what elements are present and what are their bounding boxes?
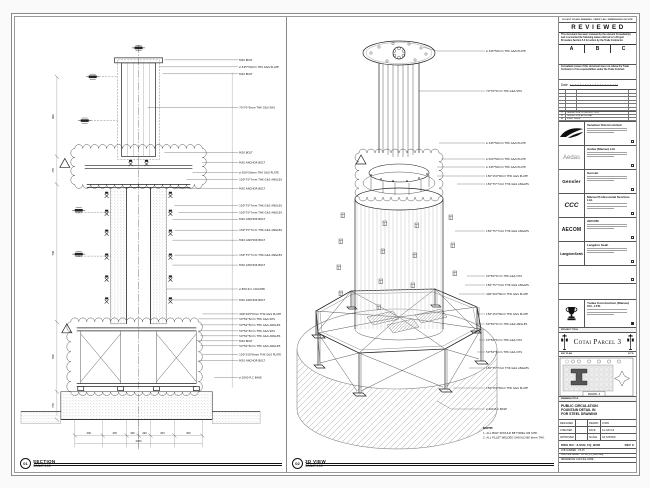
contractor-trophy-icon — [565, 306, 578, 322]
project-name: Cotai Parcel 3 — [574, 338, 622, 346]
callout-label: 70*70*5mm THK G&S SHS — [239, 106, 275, 110]
callout-label: M20 ANCHOR BOLT — [239, 263, 265, 267]
callout-label: 150*75*7mm THK G&S ANGLES — [239, 177, 282, 181]
revision-table-entries: CISSUED FOR CONSTRUCTION BISSUED FOR APP… — [559, 112, 636, 122]
callout-label: M20 ANCHOR BOLT — [239, 160, 265, 164]
status-c[interactable]: C — [611, 45, 636, 53]
section-callouts: M20 BOLT ø 345*50mm THK G&S PLATE M20 BO… — [148, 58, 283, 380]
callout-label: 50*50*5mm THK G&S ANGLES — [239, 323, 280, 327]
callout-label: 150*75*7mm THK G&S ANGLES — [239, 228, 282, 232]
drawing-sheet: 600 750 500 500 750 400 400 400 400 400 … — [11, 13, 640, 476]
callout-label: 50*50*5mm THK G&S ANGLES — [239, 334, 280, 338]
callout-label: M20 BOLT — [239, 339, 253, 343]
rev-value: C — [632, 443, 634, 447]
callout-label: ø 500*50mm THK G&S PLATE — [486, 157, 526, 161]
drawing-title-line: FOR STEEL DRAWING — [561, 412, 634, 416]
callout-label: 150*150*8mm THK G&S PLATE — [239, 353, 281, 357]
svg-text:2400: 2400 — [136, 440, 143, 443]
dwg-no-label: DWG NO : — [561, 443, 576, 447]
callout-label: 400*200*8mm THK G&S PLATE — [239, 312, 281, 316]
title-block-panel: DO NOT SCALE DRAWING. VERIFY ALL DIMENSI… — [559, 17, 636, 472]
svg-text:400: 400 — [186, 432, 191, 435]
consultant-block-venetian: Venetian Orient Limited — [559, 122, 636, 146]
section-dimensions: 600 750 500 500 750 400 400 400 400 400 … — [52, 73, 232, 448]
approval-checkbox[interactable] — [631, 140, 635, 144]
scale-field-value: AS SHOWN — [601, 434, 636, 440]
callout-label: 150*75*7mm THK G&S ANGLES — [486, 182, 529, 186]
callout-label: ø 850 R.C COLUMN — [239, 287, 265, 291]
contractor-block: Yudea Construction (Macau) CO., LTD. — [559, 300, 636, 328]
callout-label: 150*75*7mm THK G&S ANGLES — [239, 253, 282, 257]
iso-notes: NOTE: 1. ALL BOLT SHOULD BE FIXING ON SI… — [483, 426, 545, 440]
status-b[interactable]: B — [585, 45, 611, 53]
rev-label: REV — [625, 443, 631, 447]
key-plan-caption: PARCEL 3 — [588, 392, 601, 396]
aedas-logo: Aedas — [563, 155, 580, 161]
callout-label: M20 BOLT — [239, 150, 253, 154]
callout-label: ø 345*50mm THK G&S PLATE — [239, 65, 279, 69]
date-field-value: 14-JUN-16 — [601, 427, 636, 433]
detail-bubble: 01 — [20, 458, 31, 469]
section-view-drawing: 600 750 500 500 750 400 400 400 400 400 … — [15, 17, 286, 472]
note-line: 2. ALL FILLET WELDED SHOULD BE 6mm THK. — [483, 436, 545, 440]
key-plan-scale: N.T.S. — [628, 353, 634, 355]
callout-label: 50*50*5mm THK G&S CHS — [486, 350, 522, 354]
revision-row: AFIRST ISSUE — [559, 118, 636, 121]
callout-label: 50*50*5mm THK G&S ANGLES — [239, 344, 280, 348]
approval-checkbox[interactable] — [631, 260, 635, 264]
checked-label: CHECKED — [559, 427, 576, 433]
view-title-rule-thin — [306, 465, 554, 466]
callout-label: ø 345*50mm THK G&S PLATE — [486, 49, 526, 53]
svg-text:400: 400 — [130, 432, 135, 435]
callout-label: 150*75*7mm THK G&S ANGLES — [239, 203, 282, 207]
date-label: Date : — [561, 83, 570, 87]
checked-value: - — [576, 427, 588, 433]
revision-table-empty — [559, 90, 636, 112]
consultant-block-aedas: Aedas Aedas (Macau) Ltd. — [559, 146, 636, 170]
reviewed-paragraph: This document has been reviewed by the r… — [559, 33, 636, 44]
approval-checkbox[interactable] — [631, 322, 635, 326]
spare-consultant-box — [559, 284, 636, 300]
callout-label: ø 345*50mm THK G&S PLATE — [486, 141, 526, 145]
callout-label: 150*75*7mm THK G&S ANGLES — [486, 283, 529, 287]
ref-cad-file-row: REFERENCE CAD FILE NAME : — [559, 458, 636, 463]
consultant-block-aecom: AECOM AECOM — [559, 218, 636, 242]
callout-label: ø 500*50mm THK G&S PLATE — [239, 170, 279, 174]
key-plan-map: PARCEL 3 — [559, 357, 636, 397]
note-title: NOTE: — [483, 426, 493, 430]
scale-field-label: SCALE — [588, 434, 601, 440]
callout-label: ø 200 R.C BASE — [486, 407, 507, 411]
callout-label: 150*75*7mm THK G&S ANGLES — [486, 229, 529, 233]
langdonseah-logo: LangdonSeah — [560, 252, 582, 256]
reviewed-disclaimer: Consultant review of this document does … — [559, 65, 636, 80]
callout-label: M20 BOLT — [239, 72, 253, 76]
dwg-no-value: 3-SUB_FQ_B000 — [577, 443, 601, 447]
sheet-frame: 600 750 500 500 750 400 400 400 400 400 … — [14, 16, 637, 473]
drawn-value: CHAN — [601, 420, 636, 426]
svg-text:400: 400 — [86, 432, 91, 435]
iso-view-title: 02 3D VIEW SCALE 1:10 — [292, 458, 326, 469]
view-title-rule — [306, 463, 554, 464]
view-scale-text: SCALE 1:10 — [305, 464, 326, 468]
callout-label: 70*70*5mm THK G&S SHS — [486, 89, 522, 93]
designed-label: DESIGNED — [559, 420, 576, 426]
svg-text:750: 750 — [52, 168, 55, 173]
callout-label: M20 ANCHOR BOLT — [239, 238, 265, 242]
status-row: A B C — [559, 44, 636, 53]
svg-text:400: 400 — [142, 432, 147, 435]
iso-geometry — [297, 41, 497, 449]
callout-label: ø 345*50mm THK G&S PLATE — [486, 165, 526, 169]
approved-label: APPROVED — [559, 434, 576, 440]
approval-checkbox[interactable] — [631, 236, 635, 240]
dwg-no-row: DWG NO : 3-SUB_FQ_B000 REV C — [559, 441, 636, 449]
gensler-logo: Gensler — [562, 179, 581, 184]
lamp-icon — [561, 334, 568, 350]
callout-label: 50*50*5mm THK G&S ANGLES — [486, 322, 527, 326]
reviewed-title: R E V I E W E D — [559, 23, 636, 33]
status-a[interactable]: A — [559, 45, 585, 53]
callout-label: 150*150*8mm THK G&S PLATE — [486, 312, 528, 316]
approval-checkbox[interactable] — [631, 278, 635, 282]
svg-text:400: 400 — [160, 432, 165, 435]
aecom-logo: AECOM — [562, 227, 582, 233]
approval-checkbox[interactable] — [631, 164, 635, 168]
drawing-sheet-page: { "sheet": { "views": { "section": {"bub… — [0, 0, 650, 488]
svg-text:750: 750 — [52, 403, 55, 408]
drawing-fields: DESIGNED - DRAWN CHAN CHECKED - DATE 14-… — [559, 420, 636, 441]
iso-view-drawing: ø 345*50mm THK G&S PLATE 70*70*5mm THK G… — [287, 17, 558, 472]
callout-label: 150*150*8mm THK G&S PLATE — [486, 174, 528, 178]
date-entry-line[interactable] — [570, 82, 618, 86]
callout-label: M20 BOLT — [239, 58, 253, 62]
consultant-block-gensler: Gensler Gensler — [559, 170, 636, 194]
svg-text:400: 400 — [112, 432, 117, 435]
svg-text:600: 600 — [52, 114, 55, 119]
svg-text:500: 500 — [52, 354, 55, 359]
drawn-label: DRAWN — [588, 420, 601, 426]
callout-label: M20 ANCHOR BOLT — [239, 186, 265, 190]
note-line: 1. ALL BOLT SHOULD BE FIXING ON SITE. — [483, 431, 538, 435]
mps-logo: CCC — [564, 202, 578, 209]
date-field-label: DATE — [588, 427, 601, 433]
callout-label: M20 ANCHOR BOLT — [239, 359, 265, 363]
svg-text:500: 500 — [52, 250, 55, 255]
callout-label: 50*50*5mm THK G&S SHS — [239, 329, 275, 333]
callout-label: 150*75*7mm THK G&S ANGLES — [239, 210, 282, 214]
callout-label: M20 ANCHOR BOLT — [239, 298, 265, 302]
section-view-title: 01 SECTION SCALE 1:10 — [20, 458, 56, 469]
section-view-panel: 600 750 500 500 750 400 400 400 400 400 … — [15, 17, 287, 472]
approved-value: - — [576, 434, 588, 440]
consultant-block-mps: CCC Macau Professional Services Ltd. — [559, 194, 636, 218]
lamp-icon — [627, 334, 634, 350]
callout-label: M20 ANCHOR BOLT — [239, 217, 265, 221]
designed-value: - — [576, 420, 588, 426]
project-name-row: Cotai Parcel 3 — [559, 333, 636, 352]
callout-label: 400*200*8mm THK G&S PLATE — [486, 292, 528, 296]
iso-view-panel: ø 345*50mm THK G&S PLATE 70*70*5mm THK G… — [287, 17, 559, 472]
approval-checkbox[interactable] — [631, 212, 635, 216]
key-plan-drawing: PARCEL 3 — [559, 357, 634, 397]
callout-label: 50*50*5mm THK G&S CHS — [486, 274, 522, 278]
callout-label: 50*50*5mm THK G&S SHS — [239, 317, 275, 321]
callout-label: 150*150*8mm THK G&S PLATE — [486, 386, 528, 390]
view-scale-text: SCALE 1:10 — [33, 464, 56, 468]
venetian-logo-icon — [560, 128, 584, 139]
approval-checkbox[interactable] — [631, 188, 635, 192]
view-title-rule-thin — [34, 465, 282, 466]
reviewed-stamp: R E V I E W E D This document has been r… — [559, 23, 636, 65]
view-title-rule — [34, 463, 282, 464]
date-row: Date : — [559, 80, 636, 90]
callout-label: ø 2000 R.C BASE — [239, 376, 262, 380]
detail-bubble: 02 — [292, 458, 303, 469]
consultant-block-langdonseah: LangdonSeah Langdon Seah — [559, 242, 636, 266]
drawing-title-text: PUBLIC CIRCULATION FOUNTAIN DETAIL IN FO… — [559, 402, 636, 420]
key-plan-label: KEY PLAN — [561, 353, 572, 355]
spare-consultant-box — [559, 266, 636, 284]
callout-label: 150*75*7mm THK G&S ANGLES — [486, 366, 529, 370]
callout-label: 50*50*5mm THK G&S CHS — [486, 338, 522, 342]
